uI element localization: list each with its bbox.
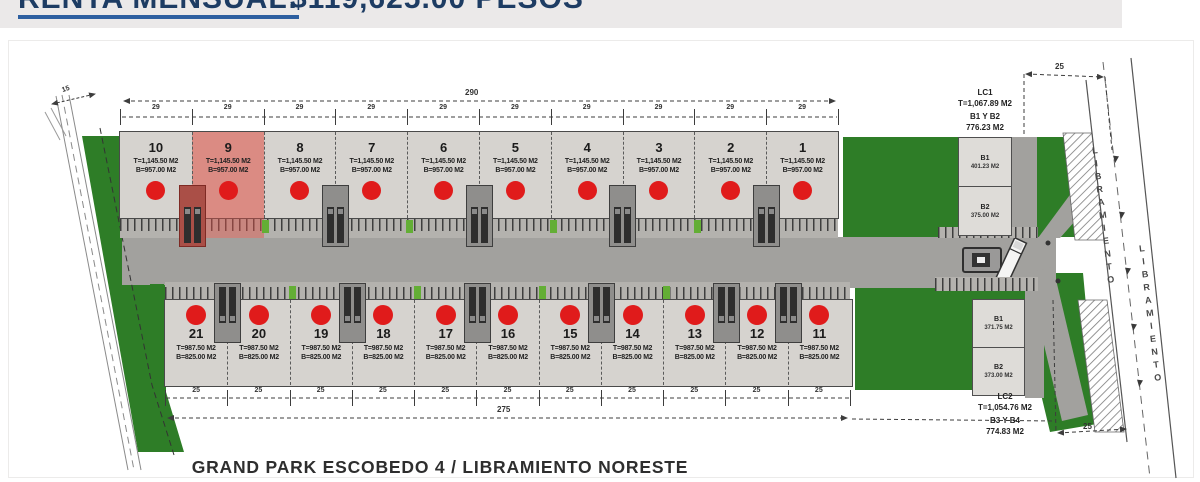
dim-top-segment: 29 xyxy=(407,104,479,111)
truck-icon xyxy=(624,207,631,243)
dock-strip-right-bottom xyxy=(935,277,1038,291)
lot-area: 401.23 M2 xyxy=(971,163,999,171)
unit-number: 1 xyxy=(799,141,806,155)
dim-bottom-segment: 25 xyxy=(165,387,227,394)
dim-tick xyxy=(850,390,851,406)
unit-number: 6 xyxy=(440,141,447,155)
unit-area-total: T=987.50 M2 xyxy=(675,345,714,354)
entry-gate xyxy=(963,248,1001,272)
unit-status-dot-icon xyxy=(685,305,705,325)
loading-dock xyxy=(322,185,349,247)
dim-top-segment: 29 xyxy=(264,104,336,111)
truck-icon xyxy=(219,287,226,323)
truck-icon xyxy=(481,207,488,243)
loading-dock xyxy=(179,185,206,247)
unit-number: 16 xyxy=(501,327,515,341)
truck-icon xyxy=(479,287,486,323)
unit-area-total: T=1,145.50 M2 xyxy=(421,158,466,167)
lot-name: B1 xyxy=(994,315,1003,324)
unit-area-built: B=825.00 M2 xyxy=(550,354,590,363)
lot-area: 373.00 M2 xyxy=(984,372,1012,380)
truck-icon xyxy=(471,207,478,243)
truck-icon xyxy=(780,287,787,323)
lot-name: B2 xyxy=(994,363,1003,372)
truck-icon xyxy=(344,287,351,323)
lc2-pair: B3 Y B4 xyxy=(950,416,1060,427)
unit-area-total: T=1,145.50 M2 xyxy=(278,158,323,167)
lot-name: B2 xyxy=(981,203,990,212)
lot-name: B1 xyxy=(981,154,990,163)
dim-top-segment: 29 xyxy=(694,104,766,111)
unit-number: 2 xyxy=(727,141,734,155)
dim-top-segment: 29 xyxy=(766,104,838,111)
unit-area-total: T=1,145.50 M2 xyxy=(565,158,610,167)
dim-tick xyxy=(838,109,839,125)
dim-bottom-segment: 25 xyxy=(788,387,850,394)
dim-right-top: 25 xyxy=(1055,62,1064,71)
unit-area-total: T=1,145.50 M2 xyxy=(349,158,394,167)
unit-area-built: B=957.00 M2 xyxy=(280,167,320,176)
dim-top-segment: 29 xyxy=(479,104,551,111)
truck-icon xyxy=(768,207,775,243)
unit-status-dot-icon xyxy=(373,305,393,325)
unit-number: 18 xyxy=(376,327,390,341)
lc2-label: LC2 T=1,054.76 M2 B3 Y B4 774.83 M2 xyxy=(950,392,1060,437)
truck-icon xyxy=(469,287,476,323)
truck-icon xyxy=(758,207,765,243)
dim-bottom-overall: 275 xyxy=(497,405,510,414)
lc1-pair: B1 Y B2 xyxy=(925,112,1045,123)
dim-tick xyxy=(407,109,408,125)
green-island xyxy=(414,286,421,299)
unit-area-built: B=825.00 M2 xyxy=(488,354,528,363)
lc1-label: LC1 T=1,067.89 M2 B1 Y B2 776.23 M2 xyxy=(925,88,1045,133)
renta-label: RENTA MENSUAL: xyxy=(18,0,299,19)
dock-strip-bottom xyxy=(165,282,850,300)
unit-area-built: B=957.00 M2 xyxy=(352,167,392,176)
unit-status-dot-icon xyxy=(219,181,238,200)
unit-status-dot-icon xyxy=(747,305,767,325)
dim-tick xyxy=(192,109,193,125)
unit-area-total: T=987.50 M2 xyxy=(737,345,776,354)
unit-status-dot-icon xyxy=(434,181,453,200)
unit-area-built: B=957.00 M2 xyxy=(567,167,607,176)
lc1-total: T=1,067.89 M2 xyxy=(925,99,1045,110)
green-island xyxy=(539,286,546,299)
unit-status-dot-icon xyxy=(721,181,740,200)
loading-dock xyxy=(775,283,802,343)
unit-number: 7 xyxy=(368,141,375,155)
unit-number: 17 xyxy=(438,327,452,341)
dim-tick xyxy=(551,109,552,125)
loading-dock xyxy=(713,283,740,343)
unit-area-built: B=957.00 M2 xyxy=(208,167,248,176)
dim-bottom-segment: 25 xyxy=(414,387,476,394)
lot-b2-top[interactable]: B2 375.00 M2 xyxy=(959,186,1011,235)
lot-b1-top[interactable]: B1 401.23 M2 xyxy=(959,138,1011,186)
unit-status-dot-icon xyxy=(649,181,668,200)
dim-tick xyxy=(264,109,265,125)
road-marker-dot xyxy=(1056,279,1061,284)
truck-icon xyxy=(229,287,236,323)
loading-dock xyxy=(466,185,493,247)
unit-area-built: B=825.00 M2 xyxy=(363,354,403,363)
truck-icon xyxy=(337,207,344,243)
unit-area-built: B=957.00 M2 xyxy=(639,167,679,176)
unit-area-total: T=987.50 M2 xyxy=(551,345,590,354)
green-island xyxy=(150,284,164,308)
unit-area-total: T=1,145.50 M2 xyxy=(637,158,682,167)
dim-tick xyxy=(335,109,336,125)
unit-status-dot-icon xyxy=(498,305,518,325)
unit-area-built: B=825.00 M2 xyxy=(176,354,216,363)
unit-area-total: T=987.50 M2 xyxy=(177,345,216,354)
unit-number: 3 xyxy=(655,141,662,155)
truck-icon xyxy=(603,287,610,323)
unit-number: 11 xyxy=(812,327,826,341)
unit-status-dot-icon xyxy=(290,181,309,200)
truck-icon xyxy=(327,207,334,243)
unit-area-total: T=1,145.50 M2 xyxy=(493,158,538,167)
unit-number: 5 xyxy=(512,141,519,155)
unit-area-built: B=825.00 M2 xyxy=(737,354,777,363)
unit-number: 10 xyxy=(149,141,163,155)
unit-area-built: B=825.00 M2 xyxy=(426,354,466,363)
dim-bottom-segment: 25 xyxy=(476,387,538,394)
loading-dock xyxy=(339,283,366,343)
truck-icon xyxy=(614,207,621,243)
dim-bottom-segment: 25 xyxy=(601,387,663,394)
truck-icon xyxy=(718,287,725,323)
unit-status-dot-icon xyxy=(249,305,269,325)
unit-number: 4 xyxy=(584,141,591,155)
unit-area-built: B=957.00 M2 xyxy=(711,167,751,176)
dim-top-overall: 290 xyxy=(465,88,478,97)
unit-number: 15 xyxy=(563,327,577,341)
dim-top-segment: 29 xyxy=(623,104,695,111)
lot-area: 375.00 M2 xyxy=(971,212,999,220)
lc1-pair-area: 776.23 M2 xyxy=(925,123,1045,134)
unit-number: 13 xyxy=(688,327,702,341)
loading-dock xyxy=(214,283,241,343)
dim-tick xyxy=(623,109,624,125)
unit-area-built: B=825.00 M2 xyxy=(301,354,341,363)
unit-number: 14 xyxy=(625,327,639,341)
dim-top-segment: 29 xyxy=(120,104,192,111)
unit-area-total: T=1,145.50 M2 xyxy=(780,158,825,167)
renta-bar: RENTA MENSUAL: $119,625.00 PESOS xyxy=(0,0,1122,28)
unit-area-total: T=1,145.50 M2 xyxy=(708,158,753,167)
unit-area-built: B=825.00 M2 xyxy=(239,354,279,363)
loading-dock xyxy=(588,283,615,343)
unit-area-built: B=957.00 M2 xyxy=(136,167,176,176)
truck-icon xyxy=(593,287,600,323)
unit-status-dot-icon xyxy=(362,181,381,200)
unit-number: 12 xyxy=(750,327,764,341)
unit-status-dot-icon xyxy=(506,181,525,200)
green-island xyxy=(694,220,701,233)
unit-number: 19 xyxy=(314,327,328,341)
unit-area-total: T=987.50 M2 xyxy=(239,345,278,354)
plan-title: GRAND PARK ESCOBEDO 4 / LIBRAMIENTO NORE… xyxy=(150,457,730,478)
lc2-name: LC2 xyxy=(950,392,1060,403)
unit-status-dot-icon xyxy=(560,305,580,325)
unit-status-dot-icon xyxy=(623,305,643,325)
renta-value: $119,625.00 PESOS xyxy=(290,0,584,14)
unit-area-total: T=1,145.50 M2 xyxy=(134,158,179,167)
lot-b1-bottom[interactable]: B1 371.75 M2 xyxy=(973,300,1024,347)
dim-tick xyxy=(479,109,480,125)
dim-tick xyxy=(766,109,767,125)
lc2-total: T=1,054.76 M2 xyxy=(950,403,1060,414)
truck-icon xyxy=(728,287,735,323)
truck-icon xyxy=(790,287,797,323)
unit-area-built: B=957.00 M2 xyxy=(783,167,823,176)
loading-dock xyxy=(753,185,780,247)
unit-area-total: T=987.50 M2 xyxy=(302,345,341,354)
green-island xyxy=(550,220,557,233)
dim-top-segment: 29 xyxy=(192,104,264,111)
dim-bottom-segment: 25 xyxy=(290,387,352,394)
unit-status-dot-icon xyxy=(578,181,597,200)
truck-icon xyxy=(194,207,201,243)
unit-area-built: B=825.00 M2 xyxy=(675,354,715,363)
green-island xyxy=(262,220,269,233)
unit-status-dot-icon xyxy=(793,181,812,200)
unit-area-total: T=987.50 M2 xyxy=(488,345,527,354)
lot-b2-bottom[interactable]: B2 373.00 M2 xyxy=(973,347,1024,395)
green-island xyxy=(289,286,296,299)
truck-icon xyxy=(184,207,191,243)
unit-area-total: T=987.50 M2 xyxy=(613,345,652,354)
unit-area-total: T=987.50 M2 xyxy=(364,345,403,354)
site-plan: B1 401.23 M2 B2 375.00 M2 B1 371.75 M2 B… xyxy=(0,28,1200,482)
lot-blocks-top: B1 401.23 M2 B2 375.00 M2 xyxy=(958,137,1012,236)
unit-status-dot-icon xyxy=(146,181,165,200)
unit-area-built: B=825.00 M2 xyxy=(613,354,653,363)
unit-number: 20 xyxy=(252,327,266,341)
dim-tick xyxy=(120,109,121,125)
truck-icon xyxy=(354,287,361,323)
unit-status-dot-icon xyxy=(186,305,206,325)
dim-bottom-segment: 25 xyxy=(227,387,289,394)
lc2-pair-area: 774.83 M2 xyxy=(950,427,1060,438)
dim-bottom-segment: 25 xyxy=(725,387,787,394)
unit-area-built: B=825.00 M2 xyxy=(799,354,839,363)
green-island xyxy=(406,220,413,233)
dim-bottom-segment: 25 xyxy=(663,387,725,394)
loading-dock xyxy=(464,283,491,343)
lc1-name: LC1 xyxy=(925,88,1045,99)
dim-top-segment: 29 xyxy=(551,104,623,111)
unit-status-dot-icon xyxy=(809,305,829,325)
unit-status-dot-icon xyxy=(311,305,331,325)
dim-bottom-segment: 25 xyxy=(352,387,414,394)
dim-right-bottom: 25 xyxy=(1083,422,1092,431)
unit-area-total: T=1,145.50 M2 xyxy=(206,158,251,167)
lot-blocks-bottom: B1 371.75 M2 B2 373.00 M2 xyxy=(972,299,1025,396)
loading-dock xyxy=(609,185,636,247)
unit-area-total: T=987.50 M2 xyxy=(800,345,839,354)
road-marker-dot xyxy=(1046,241,1051,246)
unit-area-built: B=957.00 M2 xyxy=(424,167,464,176)
unit-area-total: T=987.50 M2 xyxy=(426,345,465,354)
unit-number: 21 xyxy=(189,327,203,341)
green-island xyxy=(663,286,670,299)
dim-top-segment: 29 xyxy=(335,104,407,111)
dim-tick xyxy=(694,109,695,125)
unit-number: 9 xyxy=(225,141,232,155)
dim-bottom-segment: 25 xyxy=(539,387,601,394)
unit-number: 8 xyxy=(296,141,303,155)
lot-area: 371.75 M2 xyxy=(984,324,1012,332)
unit-status-dot-icon xyxy=(436,305,456,325)
unit-area-built: B=957.00 M2 xyxy=(495,167,535,176)
